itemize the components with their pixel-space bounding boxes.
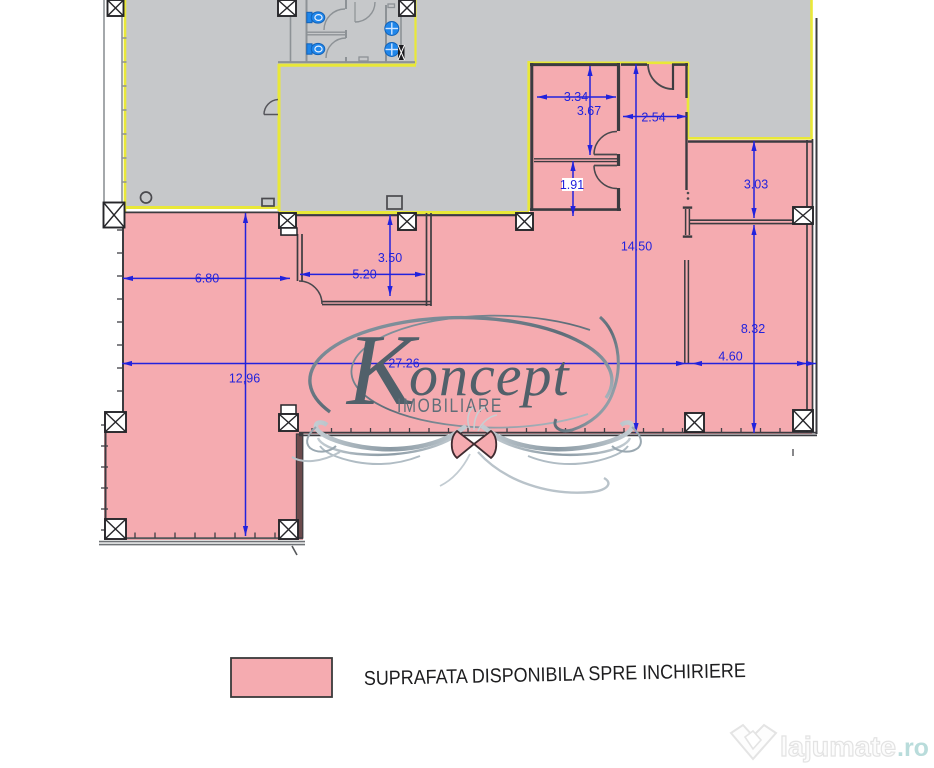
svg-text:3.67: 3.67 [577, 104, 601, 118]
svg-text:SUPRAFATA DISPONIBILA SPRE INC: SUPRAFATA DISPONIBILA SPRE INCHIRIERE [364, 660, 746, 690]
svg-text:8.32: 8.32 [741, 322, 765, 336]
svg-text:5.20: 5.20 [352, 268, 376, 282]
svg-text:IMOBILIARE: IMOBILIARE [397, 396, 503, 417]
svg-text:2.54: 2.54 [641, 111, 665, 125]
svg-text:1.91: 1.91 [560, 178, 584, 192]
svg-text:3.34: 3.34 [564, 90, 588, 104]
svg-text:3.50: 3.50 [378, 251, 402, 265]
svg-text:.ro: .ro [897, 734, 929, 762]
svg-text:3.03: 3.03 [744, 178, 768, 192]
svg-text:4.60: 4.60 [718, 350, 742, 364]
svg-text:12,96: 12,96 [229, 372, 260, 386]
svg-text:lajumate: lajumate [780, 731, 896, 762]
svg-text:6.80: 6.80 [195, 272, 219, 286]
svg-text:14.50: 14.50 [621, 240, 652, 254]
